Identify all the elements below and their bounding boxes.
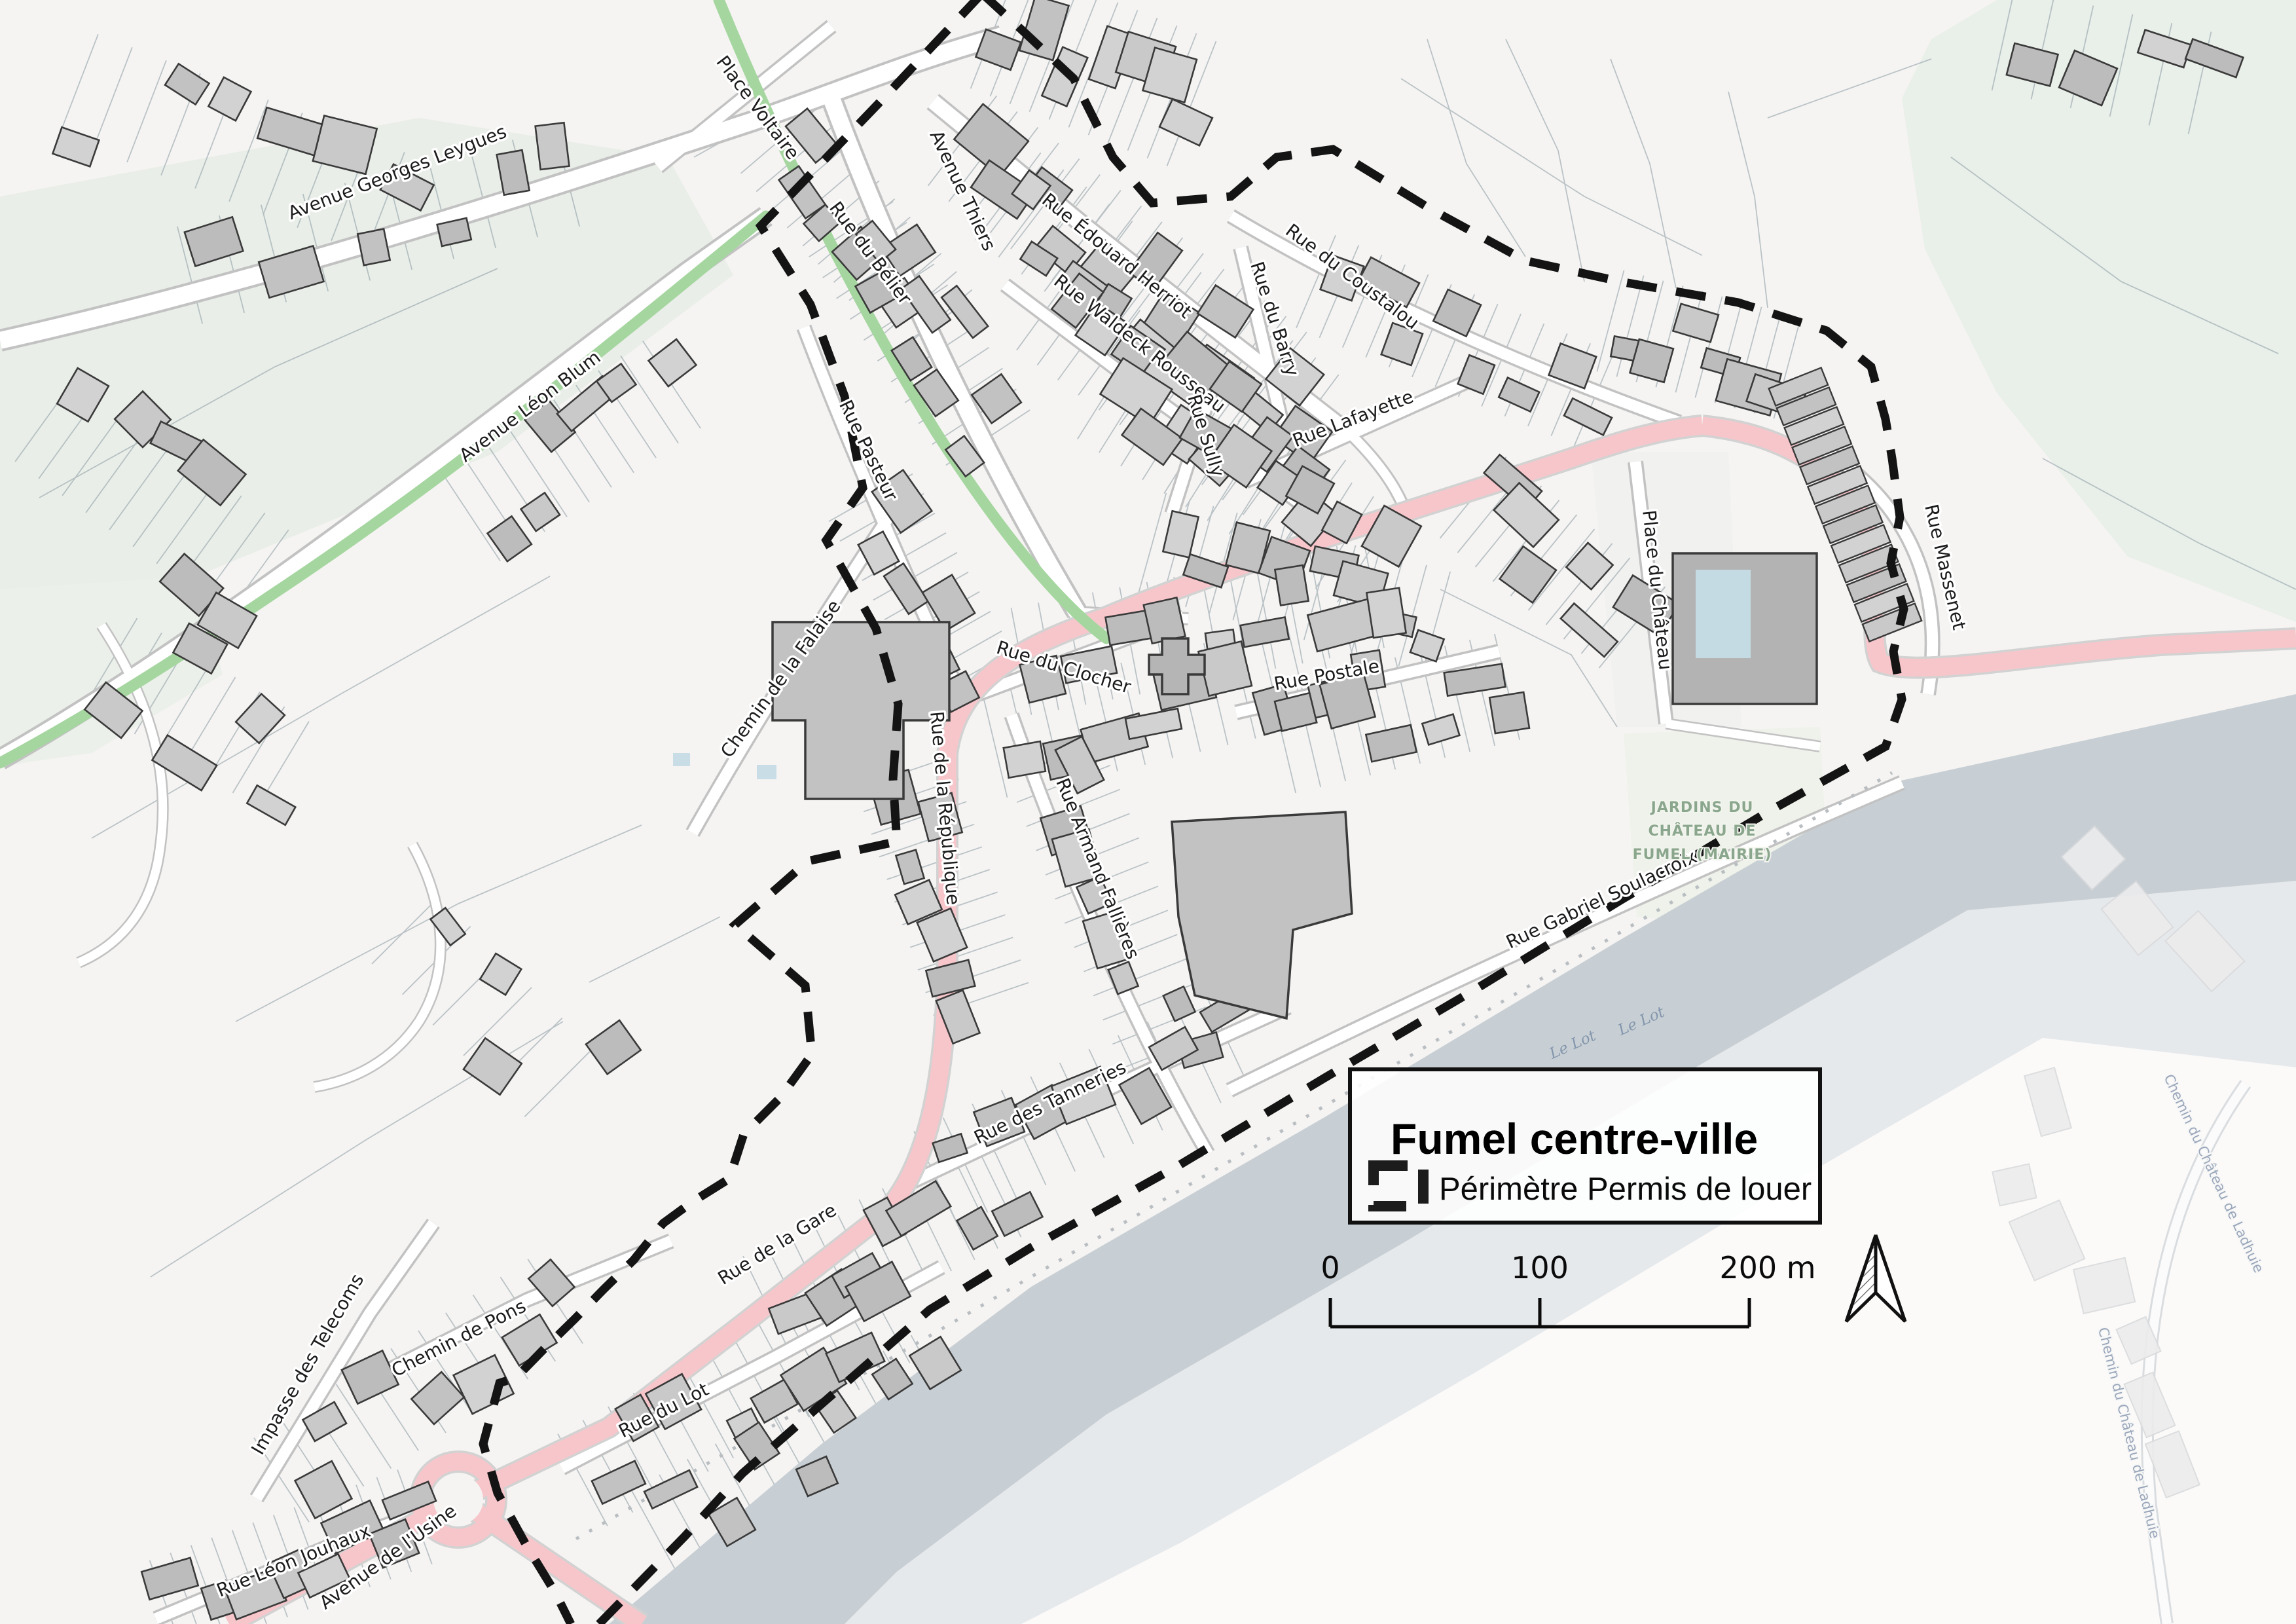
- building: [1992, 1164, 2036, 1206]
- map-svg: Chemin du Château de Ladhuie Chemin du C…: [0, 0, 2296, 1624]
- building: [1366, 588, 1406, 638]
- building: [1489, 692, 1529, 733]
- building: [1275, 565, 1308, 605]
- building: [1004, 741, 1046, 778]
- jardins-label-line3: FUMEL (MAIRIE): [1633, 847, 1772, 863]
- scale-label-200m: 200 m: [1719, 1250, 1815, 1285]
- jardins-label-line2: CHÂTEAU DE: [1648, 822, 1756, 840]
- building: [1198, 641, 1252, 695]
- legend-title: Fumel centre-ville: [1391, 1115, 1758, 1163]
- map-canvas: Chemin du Château de Ladhuie Chemin du C…: [0, 0, 2296, 1624]
- building: [536, 122, 570, 170]
- chateau-pool: [1696, 570, 1751, 658]
- building: [1144, 598, 1186, 644]
- building: [357, 229, 390, 265]
- legend-item-label: Périmètre Permis de louer: [1439, 1172, 1812, 1207]
- jardins-label-line1: JARDINS DU: [1650, 800, 1754, 816]
- scale-label-0: 0: [1321, 1250, 1339, 1285]
- legend: Fumel centre-ville Périmètre Permis de l…: [1350, 1069, 1820, 1223]
- scale-label-100: 100: [1511, 1250, 1569, 1285]
